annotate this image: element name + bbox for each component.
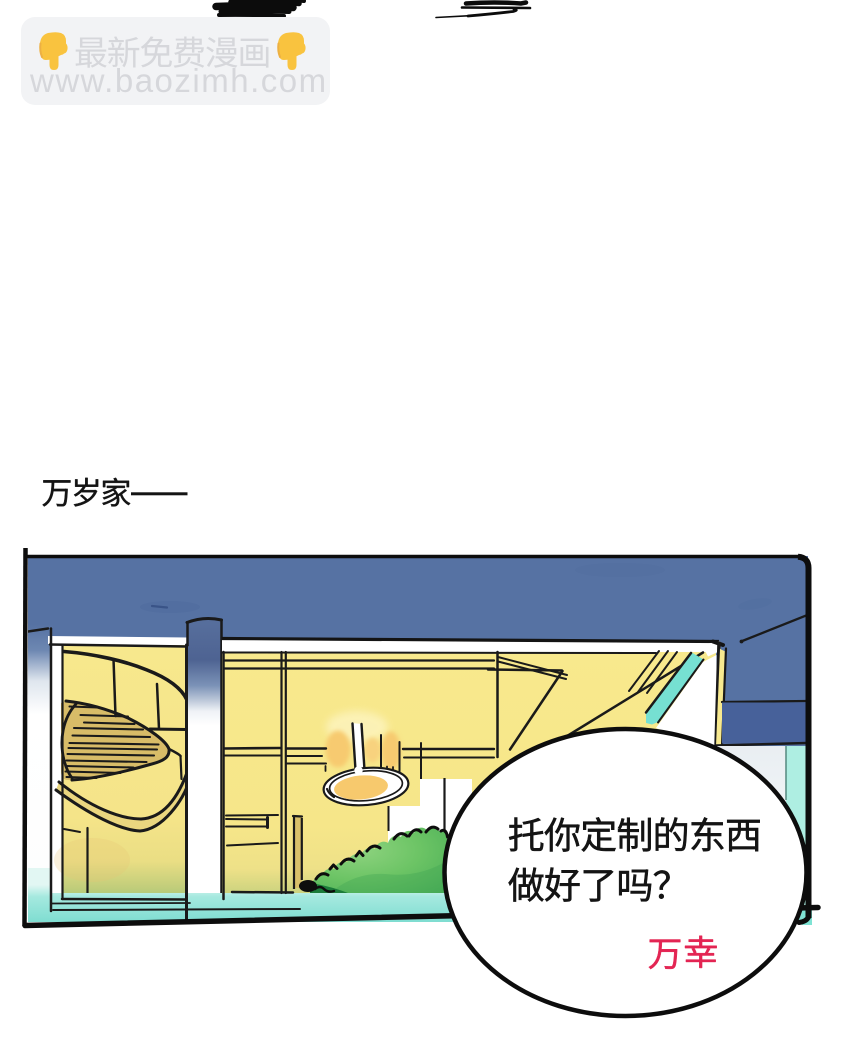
- svg-text:www.baozimh.com: www.baozimh.com: [29, 62, 328, 99]
